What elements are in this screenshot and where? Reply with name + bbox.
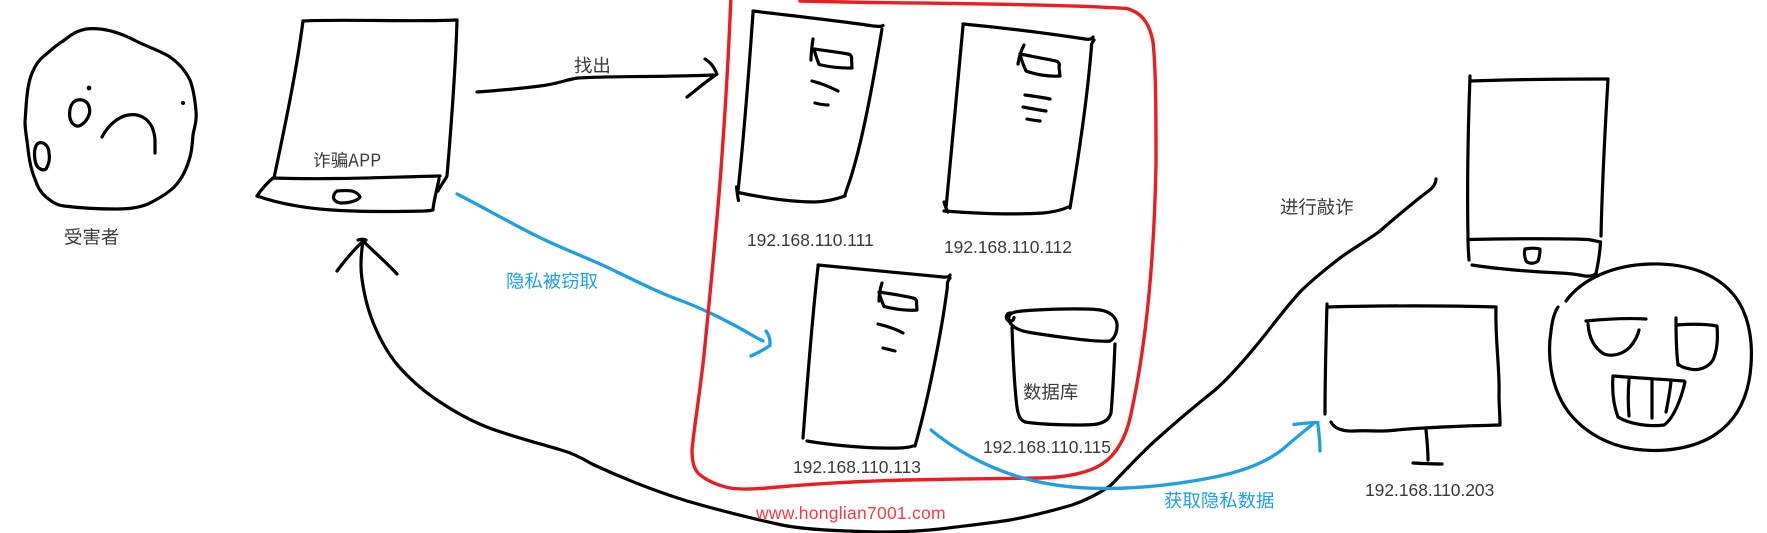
- svg-text:www.honglian7001.com: www.honglian7001.com: [755, 503, 946, 523]
- svg-text:192.168.110.112: 192.168.110.112: [944, 237, 1072, 257]
- svg-text:192.168.110.115: 192.168.110.115: [983, 437, 1111, 457]
- svg-text:192.168.110.111: 192.168.110.111: [747, 230, 874, 250]
- svg-text:192.168.110.113: 192.168.110.113: [793, 457, 921, 477]
- svg-text:192.168.110.203: 192.168.110.203: [1365, 480, 1494, 500]
